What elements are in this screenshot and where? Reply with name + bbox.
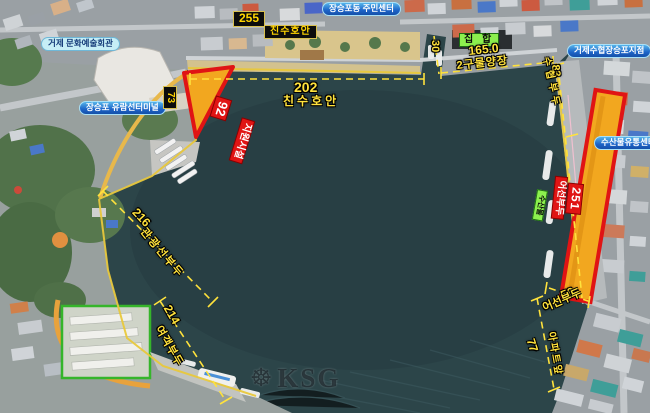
port-plan-map: 거제 문화예술회관 장승포동 주민센터 장승포 유람선터미널 거제수협장승포지점…: [0, 0, 650, 413]
community-center-label: 장승포동 주민센터: [322, 2, 401, 16]
suhyup-branch-label: 거제수협장승포지점: [567, 44, 650, 58]
length-255-label: 255: [233, 11, 265, 27]
length-30-label: 30: [428, 40, 441, 52]
revetment-202-label: 친수호안: [283, 95, 339, 109]
length-251-label: 251: [566, 184, 583, 214]
watermark-text: KSG: [277, 363, 340, 394]
watermark: ☸ KSG: [250, 363, 340, 394]
ship-wheel-icon: ☸: [250, 366, 272, 391]
cruise-terminal-label: 장승포 유람선터미널: [79, 101, 166, 115]
length-73-label: 73: [164, 86, 178, 109]
revetment-top-label: 친수호안: [264, 25, 317, 39]
length-202-label: 202: [294, 79, 317, 95]
fish-distribution-label: 수산물유통센터: [594, 136, 650, 150]
arts-center-label: 거제 문화예술회관: [41, 37, 120, 51]
